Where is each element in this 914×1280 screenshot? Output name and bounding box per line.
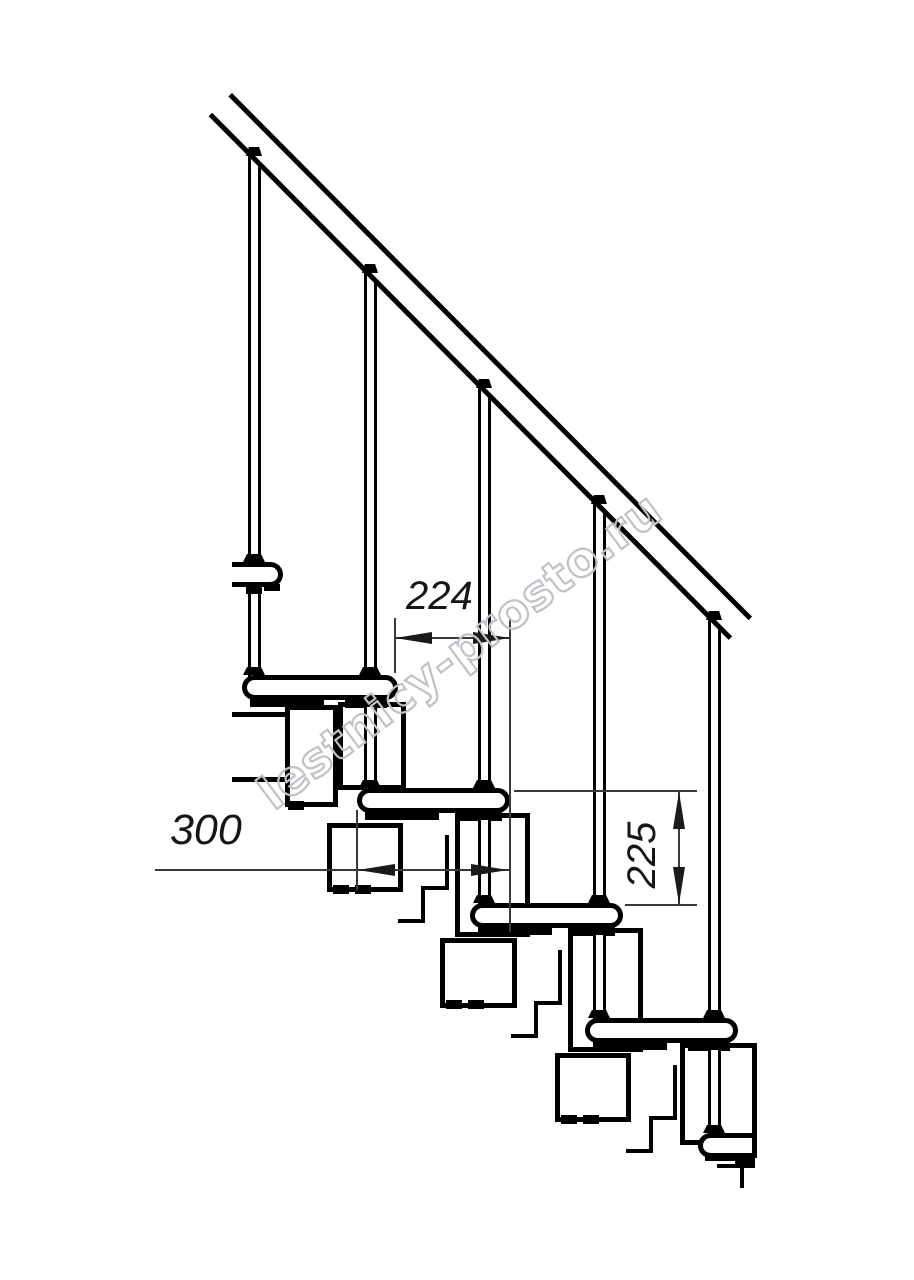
dim-225-label: 225	[620, 810, 664, 900]
dim-300-line	[155, 869, 510, 871]
dim-300-arrow-right	[471, 864, 508, 876]
dim-300-arrow-left	[358, 864, 395, 876]
dim-225-arrow-down	[673, 867, 685, 904]
dim-225-ext-top	[514, 790, 697, 792]
technical-drawing-canvas: 224 300 225 lestnicy-prosto.ru	[0, 0, 914, 1280]
dim-225-arrow-up	[673, 792, 685, 829]
dim-300-ext-left	[356, 810, 358, 890]
dim-225-ext-bottom	[625, 904, 697, 906]
